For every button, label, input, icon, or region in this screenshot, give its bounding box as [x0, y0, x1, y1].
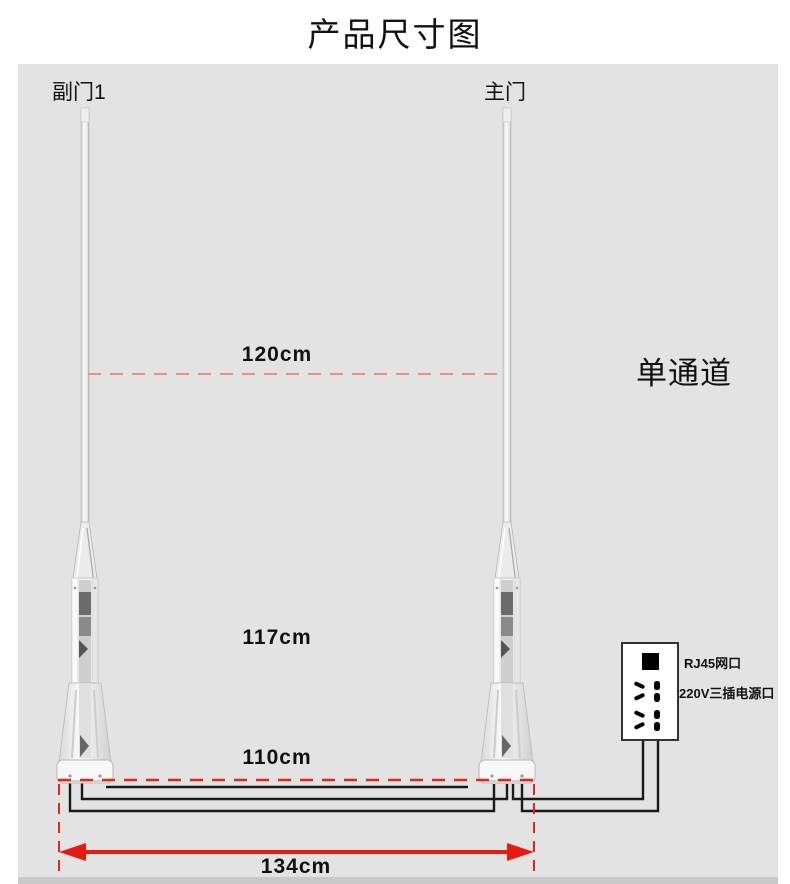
pole-left-auxiliary-door [57, 108, 113, 783]
pole-right-main-door [479, 108, 535, 783]
dim-label-120cm: 120cm [242, 343, 312, 367]
dim-label-134cm: 134cm [261, 855, 331, 879]
right-pole-label: 主门 [484, 76, 526, 106]
socket-panel [622, 643, 678, 740]
power-port-label: 220V三插电源口 [679, 683, 774, 702]
rj45-port-icon [642, 653, 659, 670]
cable-wires [70, 740, 658, 811]
dim-label-110cm: 110cm [242, 746, 311, 770]
left-pole-label: 副门1 [52, 76, 106, 106]
diagram-canvas [0, 0, 790, 884]
product-dimension-figure: 产品尺寸图 [0, 0, 790, 884]
channel-type-label: 单通道 [636, 348, 732, 393]
dim-label-117cm: 117cm [242, 626, 311, 650]
rj45-port-label: RJ45网口 [684, 653, 741, 672]
